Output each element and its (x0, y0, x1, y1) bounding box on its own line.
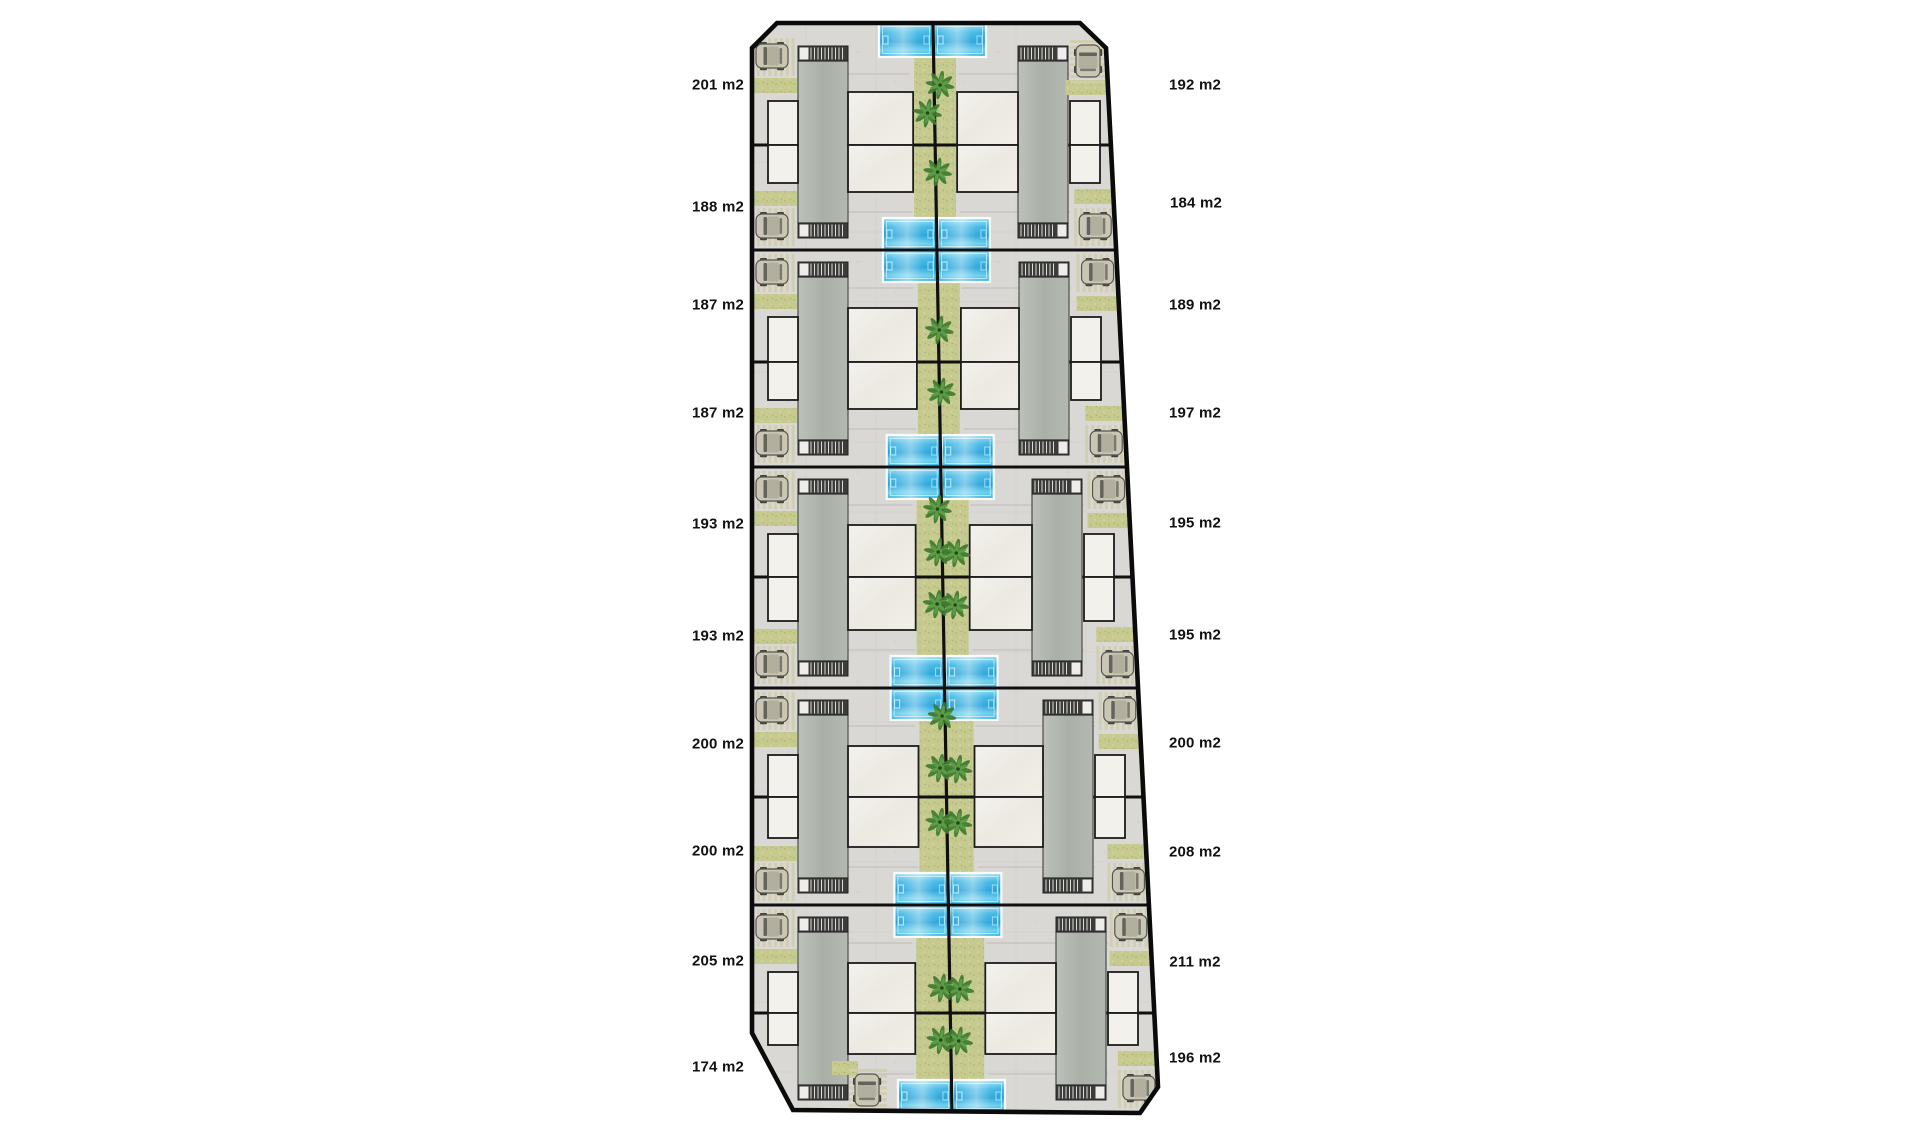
building-roof (1056, 932, 1106, 1085)
room-block (1071, 362, 1101, 400)
site-interior (742, 23, 1172, 1113)
plot-area-label-left-2: 188 m2 (692, 199, 744, 216)
room-block (768, 101, 798, 145)
room-block (1084, 577, 1114, 621)
car-icon (1090, 429, 1122, 457)
plot-divider-line (742, 687, 1172, 690)
stairs-icon (1018, 223, 1068, 238)
plot-area-label-right-6: 195 m2 (1169, 627, 1221, 644)
grass-patch (753, 191, 797, 206)
terrace (985, 1013, 1056, 1054)
plot-divider-line (742, 466, 1172, 469)
grass-patch (1118, 1051, 1160, 1066)
building-roof (1043, 715, 1093, 878)
swimming-pool (879, 23, 933, 57)
swimming-pool (894, 905, 948, 937)
swimming-pool (891, 656, 945, 688)
stairs-icon (1056, 1085, 1106, 1100)
stairs-icon (798, 661, 848, 676)
grass-patch (753, 629, 797, 644)
terrace (848, 525, 916, 577)
plot-area-label-right-8: 208 m2 (1169, 844, 1221, 861)
plot-area-label-right-5: 195 m2 (1169, 515, 1221, 532)
stairs-icon (1043, 878, 1093, 893)
car-icon (756, 913, 788, 941)
grass-patch (1107, 844, 1149, 859)
car-icon (756, 867, 788, 895)
stairs-icon (1032, 661, 1082, 676)
car-icon (1112, 867, 1144, 895)
car-icon (756, 650, 788, 678)
stairs-icon (798, 878, 848, 893)
stairs-icon (798, 1085, 848, 1100)
plot-divider-line (742, 904, 1172, 907)
terrace (848, 577, 916, 630)
building-roof (798, 61, 848, 223)
terrace (957, 145, 1018, 192)
plot-area-label-right-7: 200 m2 (1169, 735, 1221, 752)
grass-patch (753, 294, 797, 309)
swimming-pool (898, 1080, 952, 1112)
car-icon (1104, 696, 1136, 724)
plot-area-label-left-10: 174 m2 (692, 1059, 744, 1076)
building-roof (1018, 61, 1068, 223)
car-icon (1101, 650, 1133, 678)
room-block (768, 755, 798, 797)
swimming-pool (887, 467, 941, 499)
stairs-icon (798, 262, 848, 277)
grass-patch (1096, 627, 1138, 642)
stairs-icon (798, 479, 848, 494)
terrace (848, 963, 915, 1013)
room-block (1095, 797, 1125, 838)
room-block (1095, 755, 1125, 797)
plot-area-label-right-10: 196 m2 (1169, 1050, 1221, 1067)
car-icon (756, 696, 788, 724)
terrace (848, 92, 913, 145)
grass-patch (1088, 513, 1130, 528)
building-roof (798, 715, 848, 878)
terrace (957, 92, 1018, 145)
car-icon (756, 429, 788, 457)
grass-patch (753, 949, 797, 964)
swimming-pool (949, 905, 1001, 937)
grass-patch (1077, 296, 1119, 311)
room-block (768, 577, 798, 621)
terrace (848, 145, 913, 192)
terrace (975, 746, 1043, 797)
stairs-icon (1019, 262, 1069, 277)
swimming-pool (938, 218, 990, 250)
plot-area-label-right-1: 192 m2 (1169, 77, 1221, 94)
stairs-icon (798, 440, 848, 455)
grass-patch (753, 732, 797, 747)
car-icon (1115, 913, 1147, 941)
plot-area-label-left-4: 187 m2 (692, 405, 744, 422)
swimming-pool (894, 873, 948, 905)
swimming-pool (942, 467, 994, 499)
swimming-pool (942, 435, 994, 467)
plot-area-label-right-9: 211 m2 (1169, 954, 1220, 971)
swimming-pool (946, 688, 998, 720)
terrace (961, 362, 1019, 409)
car-icon (1079, 212, 1111, 240)
room-block (768, 534, 798, 577)
stairs-icon (798, 223, 848, 238)
grass-patch (753, 846, 797, 861)
terrace (848, 362, 917, 409)
building-roof (798, 277, 848, 440)
grass-patch (753, 78, 797, 93)
terrace (848, 746, 919, 797)
plot-area-label-left-1: 201 m2 (692, 77, 744, 94)
car-icon (756, 258, 788, 286)
swimming-pool (949, 873, 1001, 905)
room-block (1108, 972, 1138, 1013)
grass-patch (1085, 406, 1127, 421)
plot-area-label-left-6: 193 m2 (692, 628, 744, 645)
car-icon (756, 475, 788, 503)
room-block (768, 972, 798, 1013)
terrace (975, 797, 1043, 847)
room-block (1084, 534, 1114, 577)
plot-area-label-right-4: 197 m2 (1169, 405, 1221, 422)
terrace (961, 308, 1019, 362)
stairs-icon (798, 917, 848, 932)
car-icon (853, 1074, 881, 1106)
swimming-pool (953, 1080, 1005, 1112)
swimming-pool (934, 23, 986, 57)
plot-area-label-right-2: 184 m2 (1170, 195, 1222, 212)
stairs-icon (1019, 440, 1069, 455)
plot-area-label-left-9: 205 m2 (692, 953, 744, 970)
building-roof (1032, 494, 1082, 661)
room-block (1070, 145, 1100, 183)
terrace (985, 963, 1056, 1013)
grass-patch (1074, 189, 1116, 204)
room-block (768, 362, 798, 400)
swimming-pool (883, 250, 937, 282)
terrace (848, 1013, 915, 1054)
stairs-icon (1032, 479, 1082, 494)
stairs-icon (798, 46, 848, 61)
grass-patch (1099, 734, 1141, 749)
stairs-icon (1056, 917, 1106, 932)
grass-patch (753, 511, 797, 526)
room-block (1071, 317, 1101, 362)
car-icon (1082, 258, 1114, 286)
stairs-icon (1043, 700, 1093, 715)
room-block (768, 317, 798, 362)
building-roof (1019, 277, 1069, 440)
grass-patch (753, 408, 797, 423)
terrace (848, 797, 919, 847)
site-plan-page: 201 m2 188 m2 187 m2 187 m2 193 m2 193 m… (0, 0, 1920, 1140)
room-block (1108, 1013, 1138, 1045)
building-roof (798, 494, 848, 661)
swimming-pool (887, 435, 941, 467)
plot-area-label-left-3: 187 m2 (692, 297, 744, 314)
car-icon (756, 212, 788, 240)
stairs-icon (1018, 46, 1068, 61)
room-block (768, 145, 798, 183)
plot-area-label-left-7: 200 m2 (692, 736, 744, 753)
plot-divider-line (742, 249, 1172, 252)
car-icon (1093, 475, 1125, 503)
terrace (848, 308, 917, 362)
swimming-pool (946, 656, 998, 688)
terrace (970, 525, 1032, 577)
plot-area-label-left-8: 200 m2 (692, 843, 744, 860)
site-plan-drawing (0, 0, 1920, 1140)
stairs-icon (798, 700, 848, 715)
terrace (970, 577, 1032, 630)
grass-patch (832, 1061, 858, 1075)
room-block (768, 1013, 798, 1045)
swimming-pool (883, 218, 937, 250)
room-block (768, 797, 798, 838)
grass-patch (1110, 951, 1152, 966)
plot-area-label-right-3: 189 m2 (1169, 297, 1221, 314)
car-icon (756, 42, 788, 70)
car-icon (1074, 45, 1102, 77)
swimming-pool (938, 250, 990, 282)
room-block (1070, 101, 1100, 145)
plot-area-label-left-5: 193 m2 (692, 516, 744, 533)
